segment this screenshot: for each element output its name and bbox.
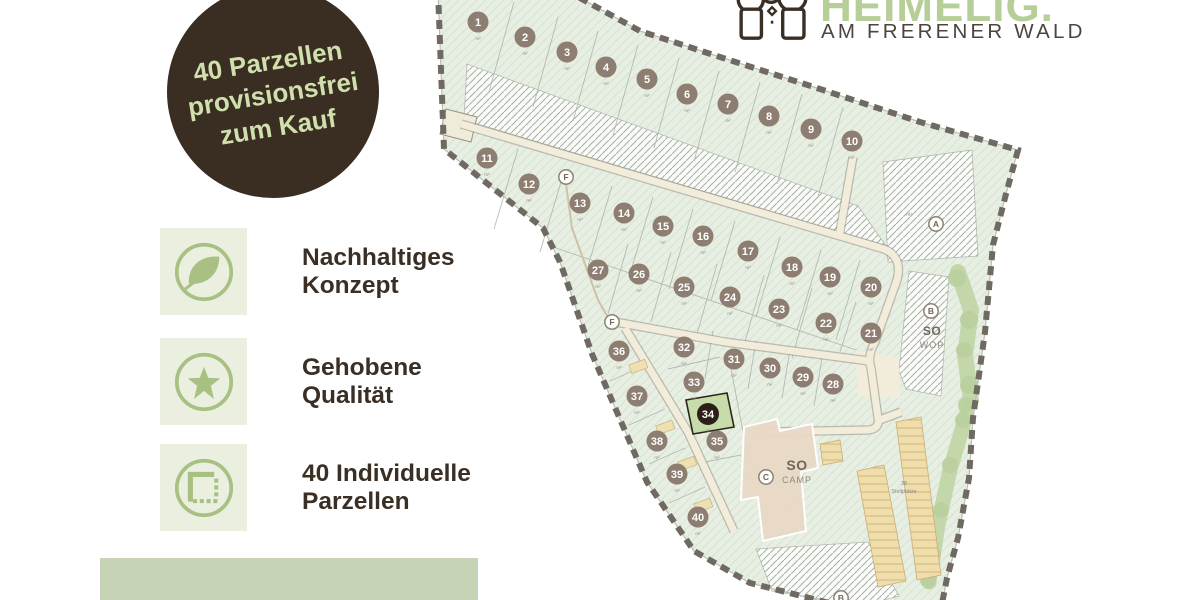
parcel-number: 30: [764, 363, 776, 375]
map-marker-f: F: [605, 315, 619, 329]
parcel-area-label: m²: [522, 51, 528, 56]
parcel-area-label: m²: [636, 288, 642, 293]
zone-title: SO: [786, 457, 807, 473]
parcel-area-label: m²: [603, 81, 609, 86]
parcel-area-label: m²: [681, 361, 687, 366]
parcel-area-label: m²: [681, 301, 687, 306]
marker-letter: F: [609, 317, 614, 327]
feature-label: 40 Individuelle Parzellen: [302, 460, 471, 516]
parcel-area-label: m²: [634, 410, 640, 415]
parcel-area-label: m²: [725, 118, 731, 123]
feature-line: Parzellen: [302, 488, 471, 516]
parcel-area-label: m²: [789, 281, 795, 286]
parcel-area-label: m²: [564, 66, 570, 71]
parcel-number: 13: [574, 198, 586, 210]
parcel-number: 40: [692, 512, 704, 524]
star-icon: [160, 338, 247, 425]
parcel-area-label: m²: [767, 382, 773, 387]
parcel-area-label: m²: [484, 172, 490, 177]
parcel-area-label: m²: [830, 398, 836, 403]
parcel-number: 20: [865, 282, 877, 294]
parcel-number: 21: [865, 328, 877, 340]
parcel-number: 29: [797, 372, 809, 384]
parcel-area-label: m²: [621, 227, 627, 232]
plot-icon: [160, 444, 247, 531]
parcel-number: 39: [671, 469, 683, 481]
parcel-area-label: m²: [695, 531, 701, 536]
bottom-green-bar: [100, 558, 478, 600]
marker-letter: B: [838, 593, 844, 600]
map-marker-f: F: [559, 170, 573, 184]
parcel-number: 11: [481, 153, 493, 165]
parcel-number: 8: [766, 111, 772, 123]
parcel-area-label: m²: [684, 108, 690, 113]
parcel-number: 22: [820, 318, 832, 330]
feature-label: Gehobene Qualität: [302, 354, 422, 410]
parcel-number: 25: [678, 282, 690, 294]
marker-letter: A: [933, 219, 939, 229]
parcel-area-label: m²: [674, 488, 680, 493]
parcel-number: 35: [711, 436, 723, 448]
zone-title: SO: [923, 324, 941, 338]
parcel-number: 14: [618, 208, 631, 220]
parcel-number: 32: [678, 342, 690, 354]
feature-individual-parcels: 40 Individuelle Parzellen: [160, 444, 471, 531]
parcel-area-label: m²: [691, 396, 697, 401]
zone-a-unit: m²: [906, 212, 912, 218]
parcel-number: 10: [846, 136, 858, 148]
parcel-area-label: m²: [660, 240, 666, 245]
zone-subtitle: WOP: [920, 340, 945, 350]
parcel-area-label: m²: [808, 143, 814, 148]
feature-line: 40 Individuelle: [302, 460, 471, 488]
parcel-number: 7: [725, 99, 731, 111]
map-marker-a: A: [929, 217, 943, 231]
marker-letter: B: [928, 306, 934, 316]
parcel-number: 36: [613, 346, 625, 358]
feature-line: Qualität: [302, 382, 422, 410]
feature-quality: Gehobene Qualität: [160, 338, 422, 425]
parcel-number: 19: [824, 272, 836, 284]
parcel-area-label: m²: [644, 93, 650, 98]
logo-subtitle: AM FRERENER WALD: [821, 20, 1086, 44]
parcel-area-label: m²: [727, 311, 733, 316]
parcel-number: 17: [742, 246, 754, 258]
map-marker-b: B: [834, 591, 848, 600]
parcel-area-label: m²: [823, 337, 829, 342]
feature-label: Nachhaltiges Konzept: [302, 244, 455, 300]
parcel-number: 33: [688, 377, 700, 389]
parcel-area-label: m²: [705, 428, 711, 433]
parcel-number: 18: [786, 262, 798, 274]
parcel-area-label: m²: [595, 284, 601, 289]
zone-a-area: [883, 150, 978, 262]
feature-line: Konzept: [302, 272, 455, 300]
parcel-number: 4: [603, 62, 610, 74]
parcel-area-label: m²: [827, 291, 833, 296]
parcel-number: 34: [702, 409, 715, 421]
parcel-number: 31: [728, 354, 740, 366]
parcel-number: 9: [808, 124, 814, 136]
trees-logo-icon: [735, 0, 813, 47]
marker-letter: F: [563, 172, 568, 182]
parcel-area-label: m²: [800, 391, 806, 396]
leaf-icon: [160, 228, 247, 315]
promo-badge-text: 40 Parzellen provisionsfrei zum Kauf: [180, 32, 365, 157]
parcel-number: 26: [633, 269, 645, 281]
parcel-area-label: m²: [616, 365, 622, 370]
parking-count: 38: [901, 481, 907, 487]
parcel-area-label: m²: [475, 36, 481, 41]
parcel-number: 6: [684, 89, 690, 101]
parcel-area-label: m²: [849, 155, 855, 160]
parcel-area-label: m²: [745, 265, 751, 270]
parcel-number: 38: [651, 436, 663, 448]
parcel-number: 37: [631, 391, 643, 403]
parcel-area-label: m²: [714, 455, 720, 460]
parcel-number: 23: [773, 304, 785, 316]
parcel-area-label: m²: [654, 455, 660, 460]
logo: HEIMELIG. AM FRERENER WALD: [735, 0, 1075, 60]
parcel-number: 5: [644, 74, 650, 86]
parcel-number: 15: [657, 221, 669, 233]
parcel-area-label: m²: [766, 130, 772, 135]
feature-line: Nachhaltiges: [302, 244, 455, 272]
parcel-number: 16: [697, 231, 709, 243]
zone-subtitle: CAMP: [782, 475, 812, 485]
parcel-number: 28: [827, 379, 839, 391]
parcel-area-label: m²: [868, 301, 874, 306]
parcel-area-label: m²: [868, 347, 874, 352]
parcel-number: 2: [522, 32, 528, 44]
parking-text: Stellplätze: [891, 489, 916, 495]
parcel-area-label: m²: [577, 217, 583, 222]
feature-sustainable-concept: Nachhaltiges Konzept: [160, 228, 455, 315]
parcel-area-label: m²: [776, 323, 782, 328]
parcel-number: 3: [564, 47, 570, 59]
marker-letter: C: [763, 472, 769, 482]
parcel-area-label: m²: [700, 250, 706, 255]
parcel-area-label: m²: [731, 373, 737, 378]
parcel-area-label: m²: [526, 198, 532, 203]
parcel-number: 24: [724, 292, 737, 304]
parcel-number: 1: [475, 17, 481, 29]
parcel-number: 27: [592, 265, 604, 277]
feature-line: Gehobene: [302, 354, 422, 382]
parcel-number: 12: [523, 179, 535, 191]
